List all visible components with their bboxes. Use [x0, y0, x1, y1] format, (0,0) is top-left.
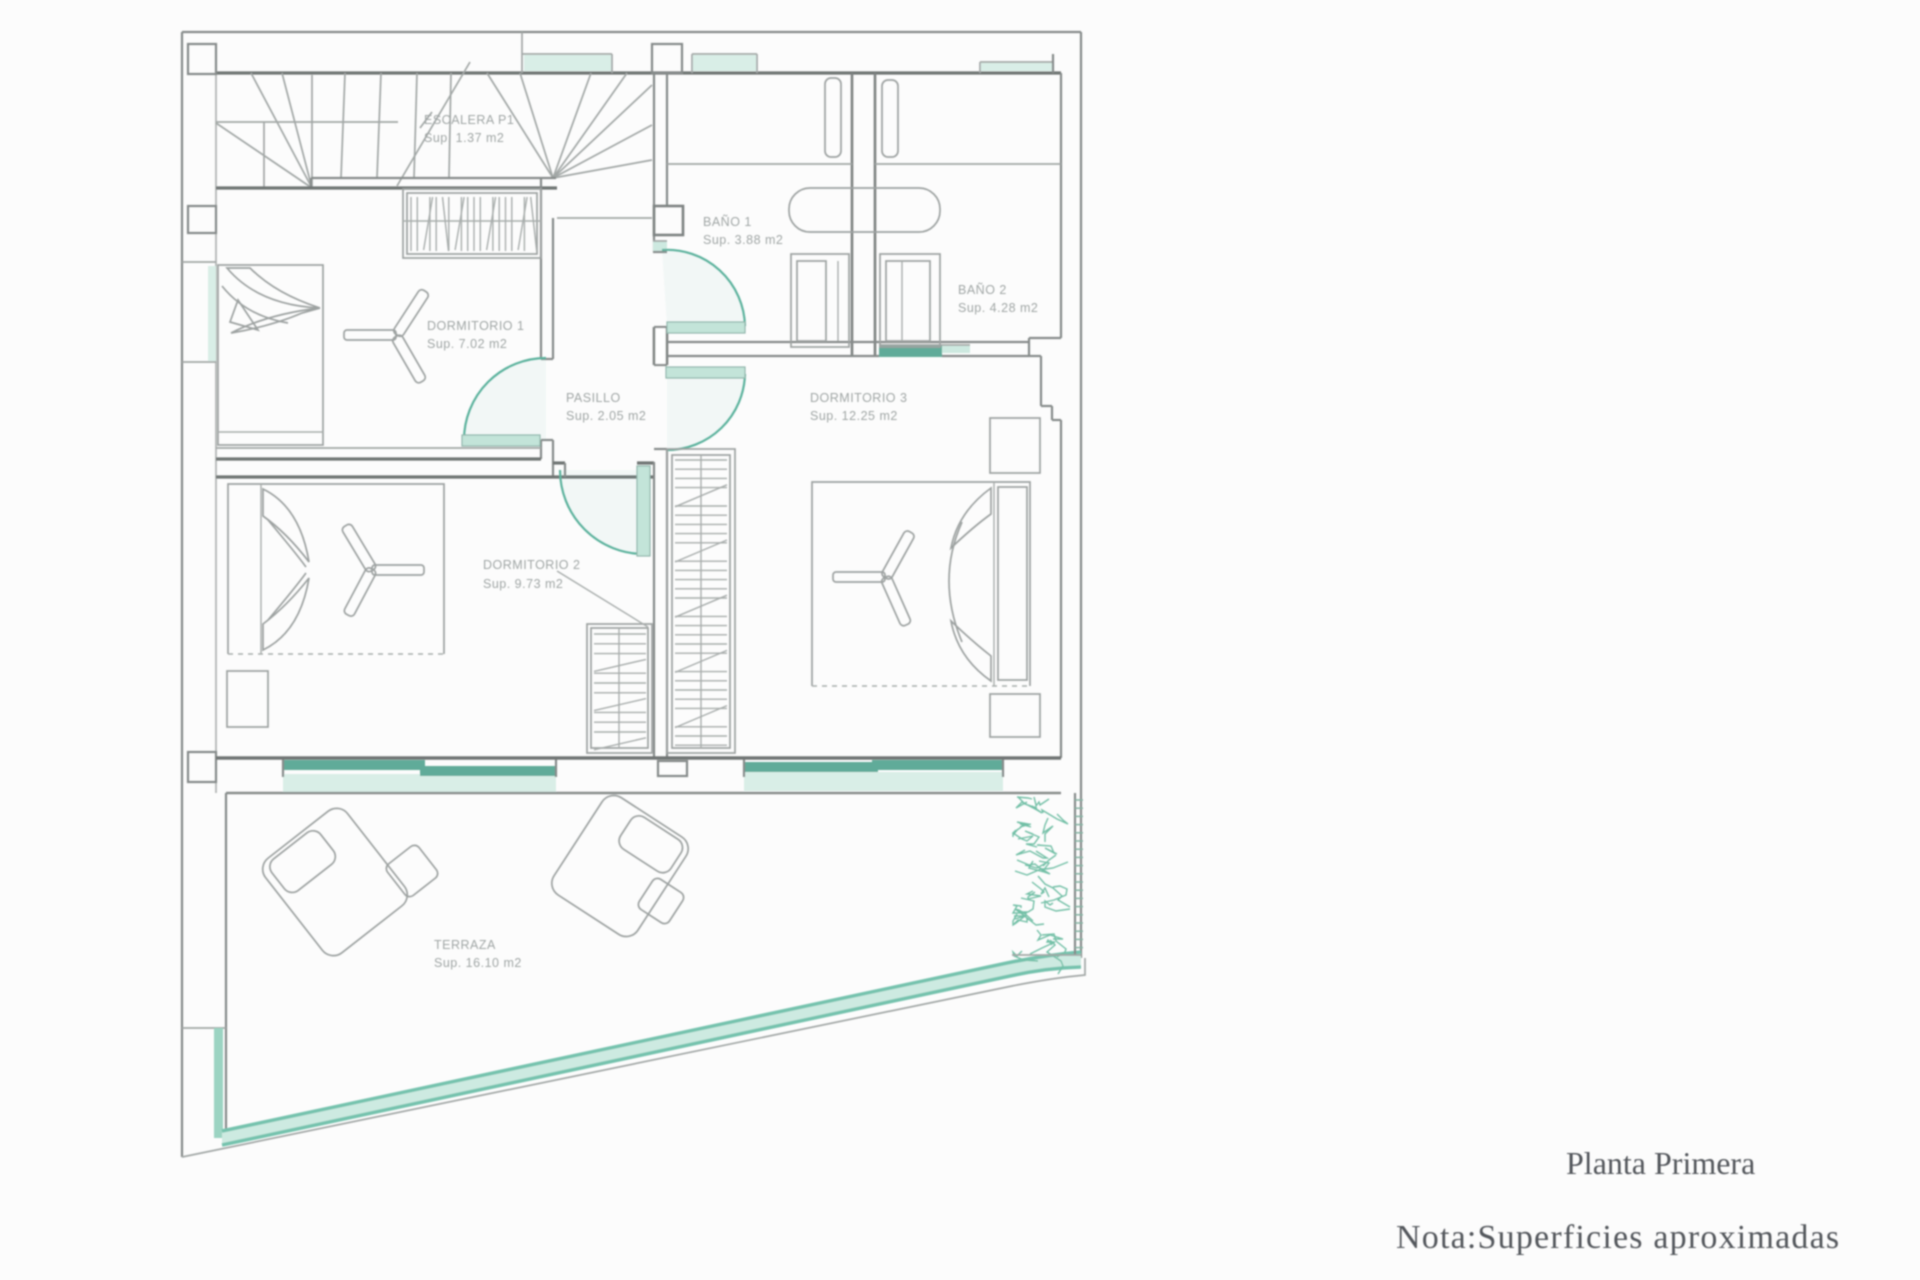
svg-text:Planta Primera: Planta Primera [1566, 1145, 1755, 1181]
svg-text:DORMITORIO 2: DORMITORIO 2 [483, 558, 580, 572]
svg-text:Sup. 2.05 m2: Sup. 2.05 m2 [566, 409, 646, 423]
svg-text:BAÑO 2: BAÑO 2 [958, 283, 1007, 297]
svg-text:Sup. 3.88 m2: Sup. 3.88 m2 [703, 233, 783, 247]
svg-text:Sup. 4.28 m2: Sup. 4.28 m2 [958, 301, 1038, 315]
svg-text:PASILLO: PASILLO [566, 391, 621, 405]
svg-text:Sup. 9.73 m2: Sup. 9.73 m2 [483, 577, 563, 591]
svg-text:Sup. 16.10 m2: Sup. 16.10 m2 [434, 956, 522, 970]
svg-text:Sup. 7.02 m2: Sup. 7.02 m2 [427, 337, 507, 351]
svg-text:DORMITORIO 1: DORMITORIO 1 [427, 319, 524, 333]
svg-text:TERRAZA: TERRAZA [434, 938, 496, 952]
svg-text:Sup. 1.37 m2: Sup. 1.37 m2 [424, 131, 504, 145]
svg-text:Nota:Superficies aproximadas: Nota:Superficies aproximadas [1396, 1219, 1840, 1256]
svg-text:ESCALERA P1: ESCALERA P1 [424, 113, 514, 127]
svg-text:Sup. 12.25 m2: Sup. 12.25 m2 [810, 409, 898, 423]
svg-text:DORMITORIO 3: DORMITORIO 3 [810, 391, 907, 405]
svg-text:BAÑO 1: BAÑO 1 [703, 215, 752, 229]
